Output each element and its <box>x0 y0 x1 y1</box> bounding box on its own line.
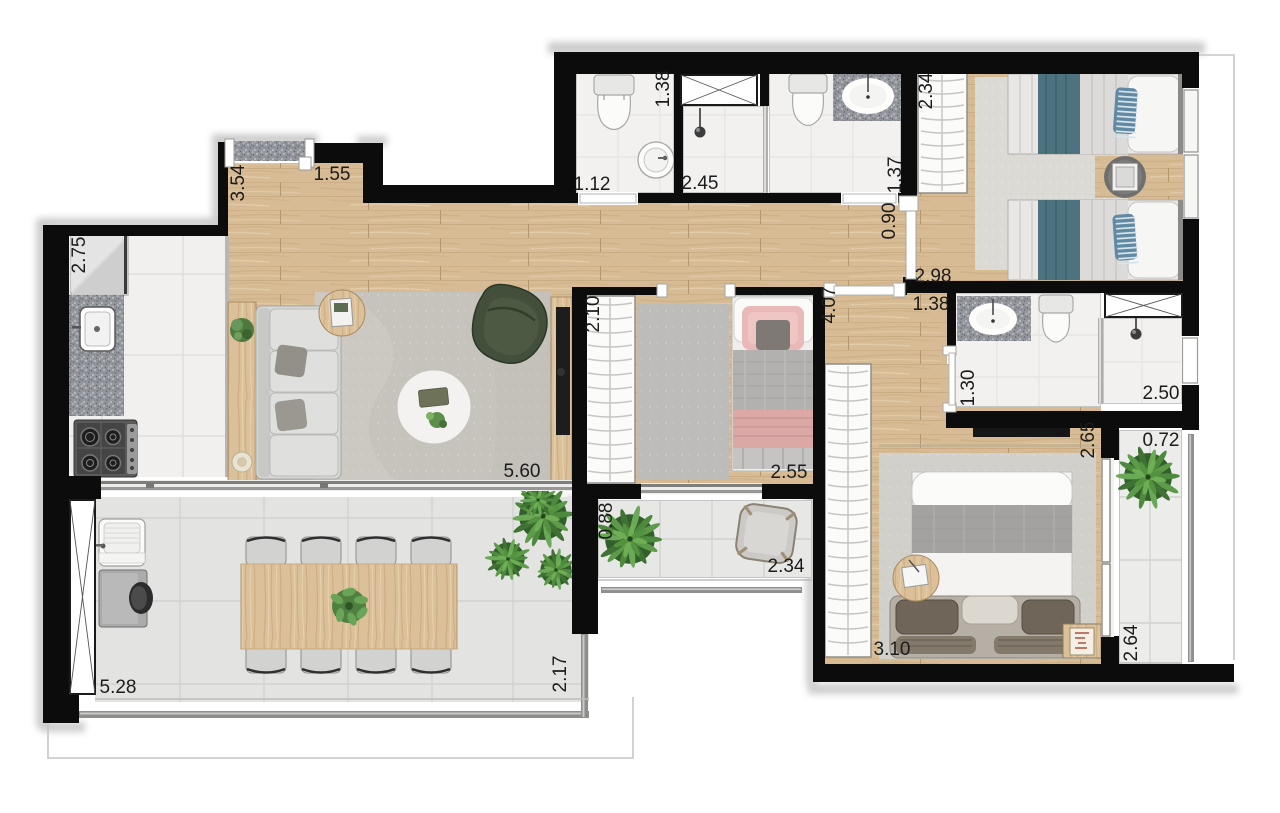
svg-text:2.17: 2.17 <box>550 656 571 693</box>
svg-text:0.88: 0.88 <box>596 503 617 540</box>
svg-text:2.64: 2.64 <box>1121 624 1142 661</box>
svg-text:1.12: 1.12 <box>574 174 611 195</box>
svg-text:4.07: 4.07 <box>819 287 840 324</box>
svg-text:5.60: 5.60 <box>504 461 541 482</box>
svg-text:1.38: 1.38 <box>913 294 950 315</box>
svg-text:2.34: 2.34 <box>768 556 805 577</box>
svg-text:5.28: 5.28 <box>100 677 137 698</box>
svg-text:2.98: 2.98 <box>915 266 952 287</box>
svg-text:2.34: 2.34 <box>916 72 937 109</box>
svg-text:3.54: 3.54 <box>228 164 249 201</box>
svg-text:1.38: 1.38 <box>653 71 674 108</box>
svg-text:3.10: 3.10 <box>874 639 911 660</box>
svg-text:2.10: 2.10 <box>583 296 604 333</box>
svg-text:1.55: 1.55 <box>314 164 351 185</box>
svg-text:2.45: 2.45 <box>682 173 719 194</box>
svg-text:0.90: 0.90 <box>879 203 900 240</box>
svg-text:0.72: 0.72 <box>1143 430 1180 451</box>
svg-text:2.75: 2.75 <box>69 237 90 274</box>
svg-text:2.55: 2.55 <box>771 462 808 483</box>
svg-text:1.37: 1.37 <box>885 157 906 194</box>
svg-text:2.50: 2.50 <box>1143 383 1180 404</box>
svg-text:1.30: 1.30 <box>958 370 979 407</box>
svg-text:2.65: 2.65 <box>1078 422 1099 459</box>
